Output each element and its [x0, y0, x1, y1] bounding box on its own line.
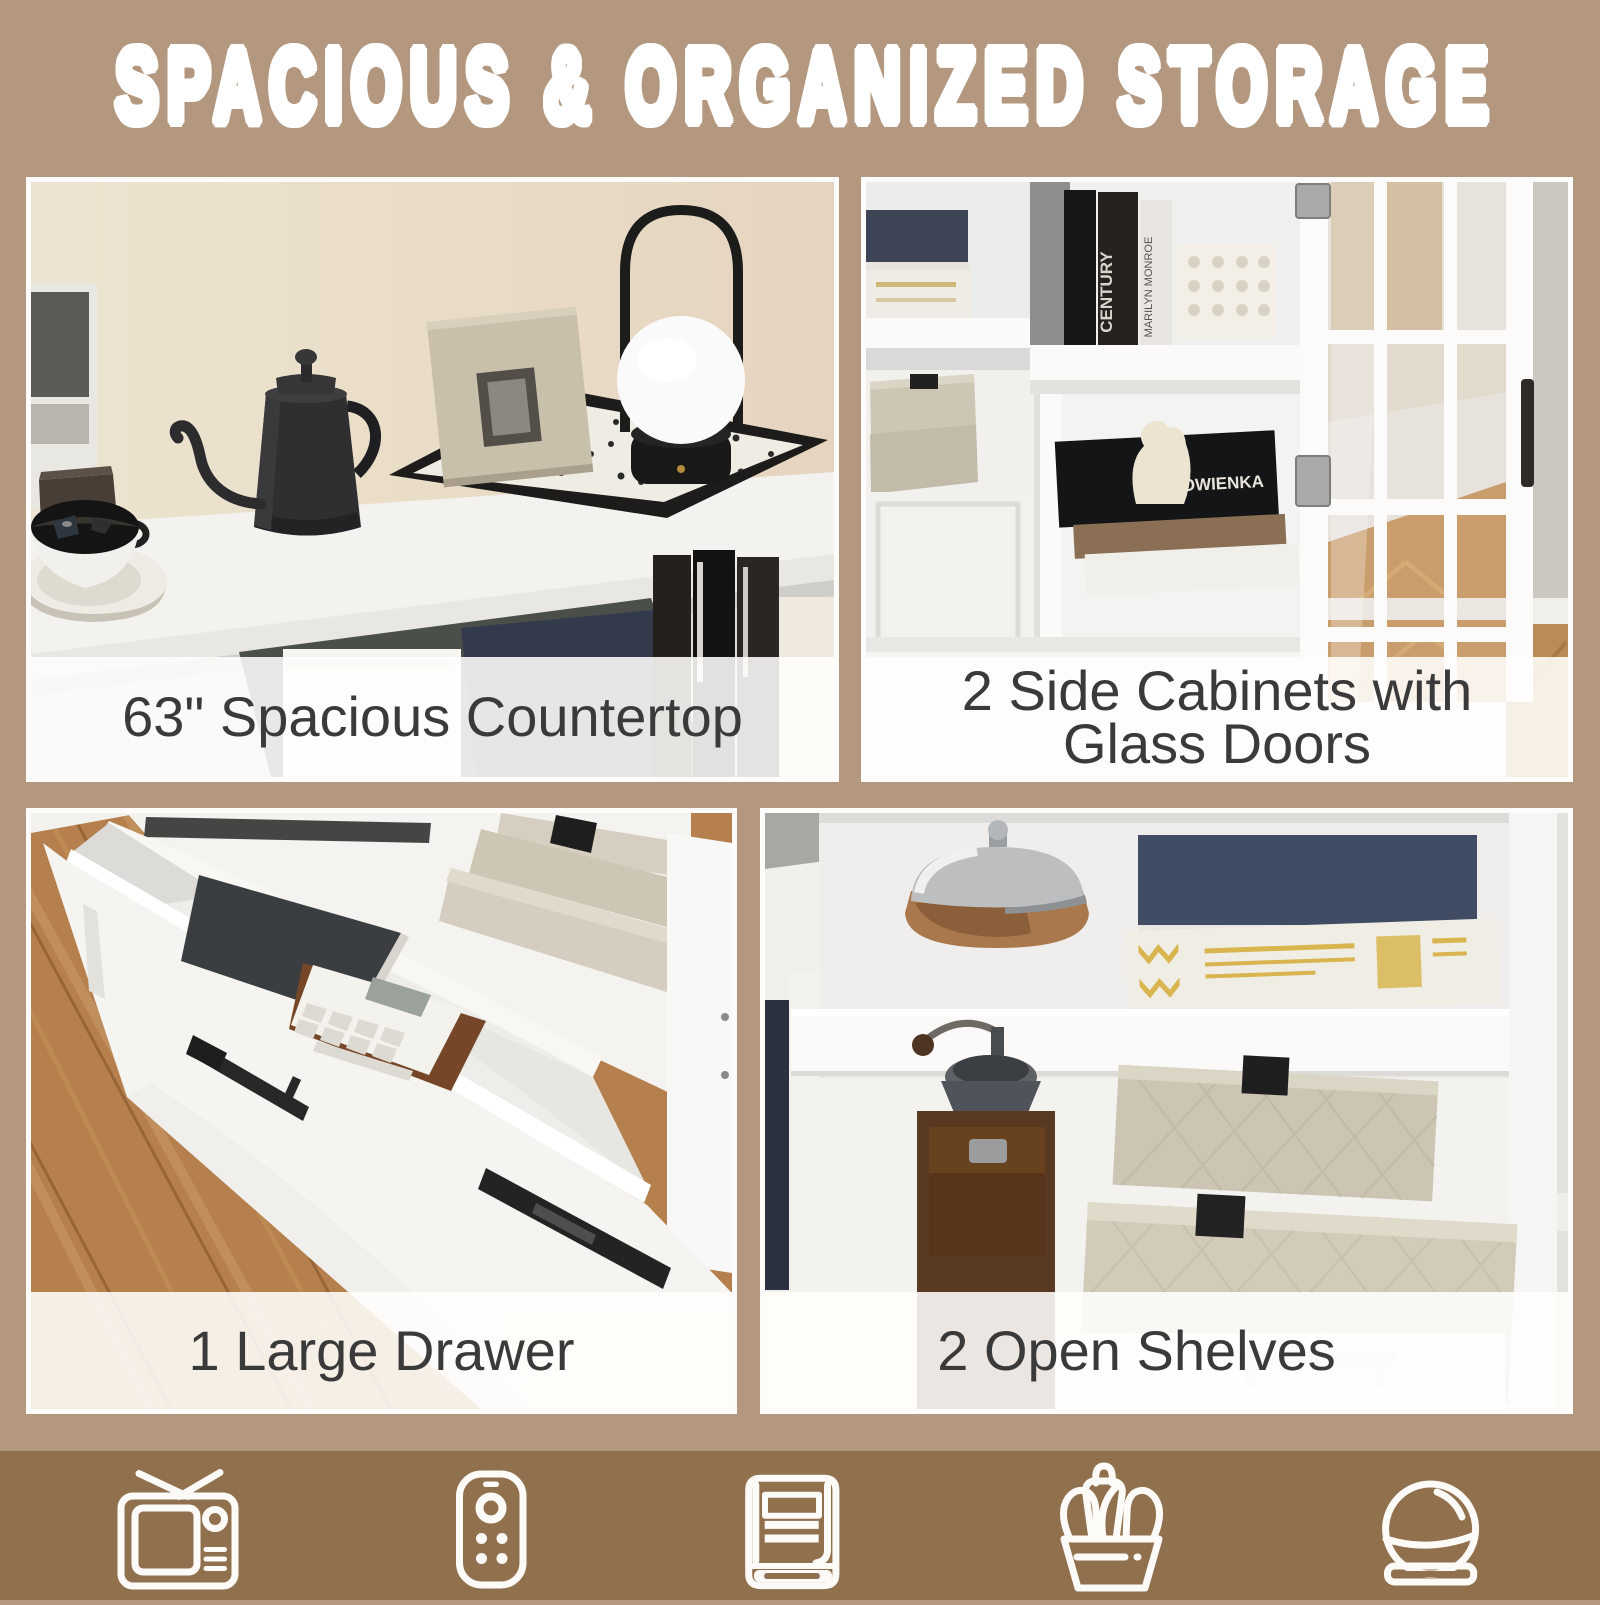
svg-text:MARILYN MONROE: MARILYN MONROE	[1143, 237, 1155, 338]
svg-text:CENTURY: CENTURY	[1097, 251, 1116, 333]
